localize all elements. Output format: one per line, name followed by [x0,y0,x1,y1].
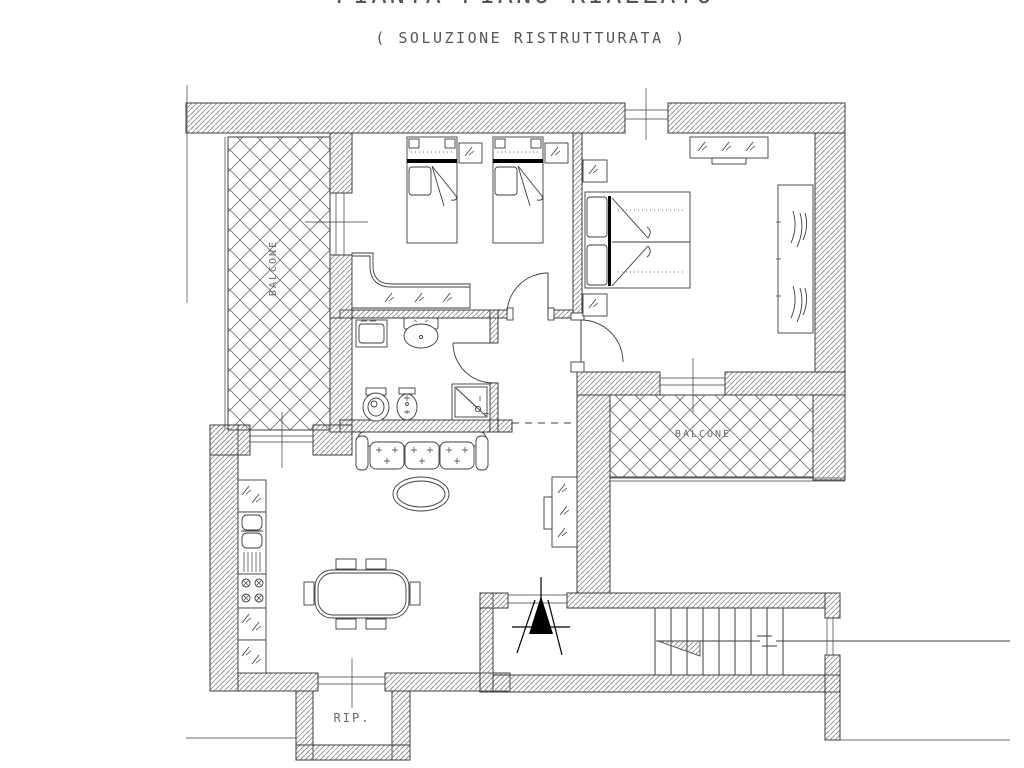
wall-bottom-a [238,673,318,691]
dining-chair [304,582,314,605]
wall-window-pier-a [210,425,250,455]
wall-stairs-right-top [825,593,840,618]
wall-bathroom-top-stub [554,310,573,318]
wall-stairs-right-bottom [825,655,840,740]
wall-bathroom-top [340,310,512,318]
wall-top-right [668,103,845,133]
master-bedroom [583,137,813,333]
page-title: PIANTA PIANO RIALZATO [335,0,714,9]
door-master-bedroom [571,313,623,372]
wardrobe [776,185,813,333]
tv [544,497,552,529]
double-bed [585,192,690,288]
single-bed-2 [493,137,543,243]
kitchen [238,480,266,673]
dining-chair [336,559,356,569]
sideboard [544,477,577,547]
wall-stairs-top [567,593,825,608]
twin-bedroom [352,137,568,308]
dining-table [304,559,420,629]
floor-plan-drawing: PIANTA PIANO RIALZATO ( SOLUZIONE RISTRU… [0,0,1024,768]
wall-bathroom-bottom [340,420,512,432]
wall-master-balcony-pier-right [725,372,845,395]
washing-machine [356,320,387,347]
wall-top-left [186,103,625,133]
coffee-table [393,477,449,511]
wall-master-balcony-pier-left [577,372,660,395]
kitchen-cabinet-top [238,480,266,512]
page-subtitle: ( SOLUZIONE RISTRUTTURATA ) [375,29,686,47]
wall-bathroom-left [330,318,352,432]
wall-living-right [577,395,610,593]
stair-arrow-tail [658,641,700,656]
wall-balcony-right-side [813,395,845,480]
living-room [304,432,577,629]
wall-rip-bottom [296,745,410,760]
wall-landing-top-stub [480,593,508,608]
washbasin [404,318,438,348]
wall-window-pier-b [313,425,352,455]
wall-left-exterior [210,425,238,691]
shower [452,384,490,420]
kitchen-sink [238,512,266,574]
kitchen-cabinet-mid [238,608,266,640]
wall-stairs-bottom [493,675,840,692]
desk [352,253,470,308]
wall-bathroom-right-upper [490,310,498,343]
single-bed-1 [407,137,457,243]
entrance-door-lines [508,595,567,603]
dining-chair [366,559,386,569]
wall-balcony-pier-mid [330,255,352,318]
balcony-left: BALCONE [225,137,330,430]
balcony-right: BALCONE [610,395,845,481]
door-bathroom [453,343,493,383]
window-storage [318,658,385,708]
door-twin-bedroom [507,273,554,320]
dresser [690,137,768,164]
dining-chair [410,582,420,605]
entrance-arrow [512,577,570,655]
sofa [356,432,488,470]
balcony-left-label: BALCONE [268,240,279,296]
kitchen-cabinet-bottom [238,640,266,673]
wall-bathroom-right-lower [490,383,498,432]
nightstand-twin-2 [545,143,568,163]
bidet [397,388,417,420]
wall-right [815,133,845,372]
toilet [363,388,389,421]
nightstand-twin-1 [459,143,482,163]
nightstand-master-top [583,160,607,182]
stove [238,574,266,608]
balcony-right-label: BALCONE [675,429,731,440]
wall-bedroom-divider [573,133,582,313]
window-stairs-right [827,618,833,655]
window-master-top [625,88,668,140]
storage-room-label: RIP. [334,711,371,725]
dining-chair [366,619,386,629]
nightstand-master-bottom [583,294,607,316]
wall-balcony-pier-top [330,133,352,193]
dining-chair [336,619,356,629]
bathroom [356,318,490,421]
